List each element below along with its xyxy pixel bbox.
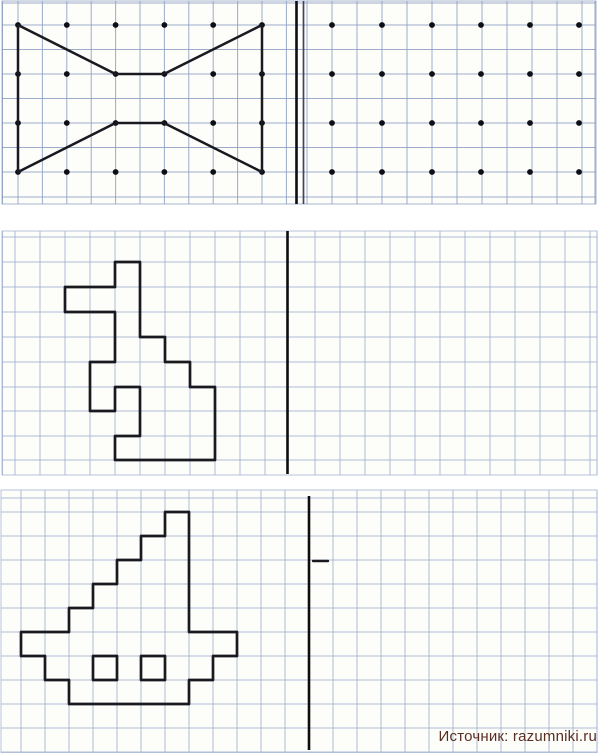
grid-dot [576,120,582,126]
grid-dot [379,22,385,28]
panel-task-boat [1,490,597,753]
panel-paper [2,231,597,475]
grid-dot [429,169,435,175]
panel-paper [1,490,597,753]
grid-dot [576,169,582,175]
grid-dot [576,71,582,77]
grid-dot [329,71,335,77]
grid-dot [527,169,533,175]
worksheet-page: Источник: razumniki.ru [0,0,600,753]
source-credit: Источник: razumniki.ru [439,728,597,746]
grid-dot [329,22,335,28]
grid-dot [576,22,582,28]
grid-dot [478,120,484,126]
grid-dot [379,120,385,126]
grid-dot [210,120,216,126]
grid-dot [64,71,70,77]
grid-dot [329,169,335,175]
grid-dot [379,169,385,175]
worksheet-canvas [0,0,600,753]
panel-task-hare [2,231,597,475]
grid-dot [429,22,435,28]
grid-dot [210,22,216,28]
grid-dot [478,169,484,175]
grid-dot [64,120,70,126]
grid-dot [210,169,216,175]
grid-dot [113,22,119,28]
grid-dot [527,120,533,126]
grid-dot [162,169,168,175]
grid-dot [64,22,70,28]
grid-dot [478,22,484,28]
grid-dot [379,71,385,77]
grid-dot [478,71,484,77]
grid-dot [113,169,119,175]
grid-dot [162,22,168,28]
grid-dot [429,120,435,126]
grid-dot [329,120,335,126]
panel-task-bowtie [2,1,596,204]
grid-dot [527,71,533,77]
grid-dot [210,71,216,77]
grid-dot [527,22,533,28]
grid-dot [64,169,70,175]
grid-dot [429,71,435,77]
